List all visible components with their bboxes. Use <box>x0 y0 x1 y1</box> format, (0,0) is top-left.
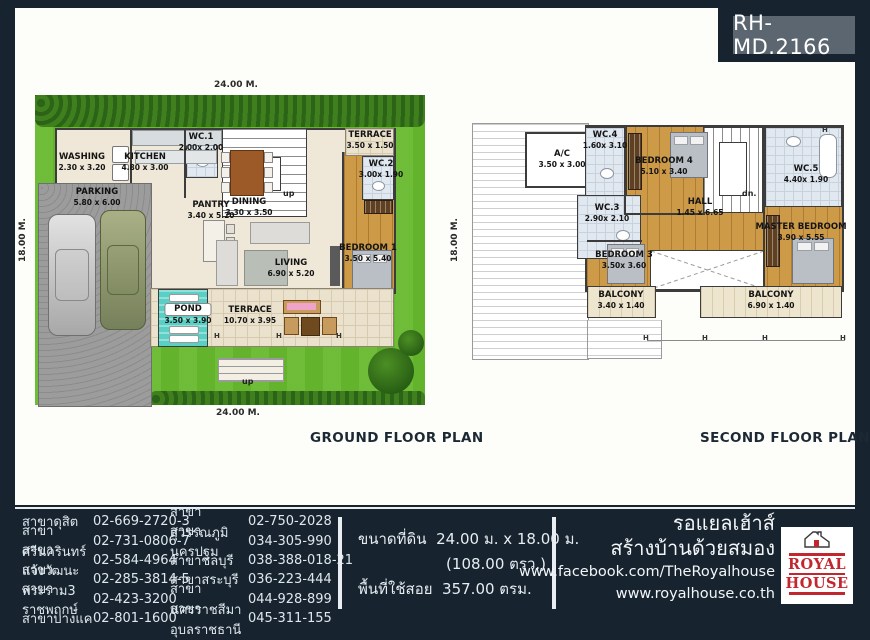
dimension-line <box>647 340 845 341</box>
branch-row: สาขาชลบุรี038-388-018-21 <box>170 551 353 570</box>
car-olive <box>100 210 146 330</box>
logo-word-house: HOUSE <box>781 576 853 591</box>
room-label-bedroom4: BEDROOM 45.10 x 3.40 <box>635 156 693 176</box>
outdoor-chair <box>284 317 299 335</box>
chair-icon <box>226 224 235 234</box>
room-label-terrace-bottom: TERRACE10.70 x 3.95 <box>224 305 276 325</box>
outdoor-table <box>301 317 320 336</box>
branch-row: สาขาบางแค02-801-1600 <box>22 609 190 628</box>
room-label-bedroom3: BEDROOM 33.50x 3.60 <box>595 250 653 270</box>
toilet-icon <box>372 181 385 191</box>
chair-icon <box>264 167 273 178</box>
h-marker: H <box>822 126 828 134</box>
stairs-down-label: dn. <box>742 189 756 198</box>
room-label-dining: DINING3.30 x 3.50 <box>225 197 272 217</box>
room-label-bedroom1: BEDROOM 13.50 x 5.40 <box>339 243 397 263</box>
room-label-wc5: WC.54.40x 1.90 <box>784 164 828 184</box>
stairs-up-label: up <box>242 377 253 386</box>
open-void <box>650 250 765 290</box>
toilet-icon <box>600 168 614 179</box>
room-label-hall: HALL1.45 x 6.65 <box>676 197 723 217</box>
chair-icon <box>221 167 230 178</box>
wall <box>587 240 642 242</box>
room-label-living: LIVING6.90 x 5.20 <box>267 258 314 278</box>
outdoor-chair <box>322 317 337 335</box>
h-marker: H <box>214 332 220 340</box>
usable-area-line: พื้นที่ใช้สอย 357.00 ตรม. <box>358 577 532 601</box>
bush <box>398 330 424 356</box>
floor-plan-poster: { "badge": "RH-MD.2166", "marker": "H", … <box>0 0 870 630</box>
brand-slogan-thai: สร้างบ้านด้วยสมอง <box>519 536 775 561</box>
dim-right: 18.00 M. <box>450 218 460 262</box>
chair-icon <box>264 152 273 163</box>
logo-word-royal: ROYAL <box>781 557 853 572</box>
car-silver <box>48 214 96 336</box>
website-url: www.royalhouse.co.th <box>519 583 775 605</box>
brand-block: รอแยลเฮ้าส์ สร้างบ้านด้วยสมอง www.facebo… <box>519 511 775 605</box>
room-label-wc2: WC.23.00x 1.90 <box>359 159 403 179</box>
stairs-up-label: up <box>283 189 294 198</box>
room-label-terrace-top: TERRACE3.50 x 1.50 <box>346 130 393 150</box>
h-marker: H <box>702 334 708 342</box>
chair-icon <box>221 152 230 163</box>
wall <box>763 127 765 287</box>
logo-bar <box>789 592 845 595</box>
branch-row: สาขาราชพฤกษ์02-423-3200 <box>22 590 190 609</box>
footer-vbar <box>338 517 342 609</box>
royal-house-logo: ROYAL HOUSE <box>781 527 853 604</box>
footer-divider <box>15 507 855 509</box>
room-label-kitchen: KITCHEN4.80 x 3.00 <box>121 152 168 172</box>
model-code-badge: RH-MD.2166 <box>733 16 855 54</box>
room-label-wc3: WC.32.90x 2.10 <box>585 203 629 223</box>
branch-list-col2: สาขาสุวรรณภูมิ02-750-2028 สาขานครปฐม034-… <box>170 512 353 628</box>
house-icon <box>800 530 834 548</box>
dim-top: 24.00 M. <box>214 80 258 90</box>
bed-icon <box>792 238 834 284</box>
room-label-pond: POND3.50 x 3.90 <box>164 303 211 325</box>
room-label-wc4: WC.41.60x 3.10 <box>583 130 627 150</box>
branch-list-col1: สาขาดุสิต02-669-2720-3 สาขาศรีนครินทร์02… <box>22 512 190 628</box>
hedge-top <box>35 95 425 127</box>
chair-icon <box>264 182 273 193</box>
room-label-washing: WASHING2.30 x 3.20 <box>58 152 105 172</box>
sofa-icon <box>216 240 238 286</box>
branch-row: สาขาอุบลราชธานี045-311-155 <box>170 609 353 628</box>
land-size-label: ขนาดที่ดิน <box>358 530 427 548</box>
h-marker: H <box>643 334 649 342</box>
second-floor-title: SECOND FLOOR PLAN <box>700 430 870 446</box>
room-label-balcony-left: BALCONY3.40 x 1.40 <box>597 290 644 310</box>
room-label-wc1: WC.12.00x 2.00 <box>179 132 223 152</box>
wardrobe-icon <box>364 200 393 214</box>
h-marker: H <box>336 332 342 340</box>
outdoor-bench <box>283 300 321 314</box>
sink-icon <box>786 136 801 147</box>
facebook-url: www.facebook.com/TheRoyalhouse <box>519 561 775 583</box>
dim-bottom: 24.00 M. <box>216 408 260 418</box>
ground-floor-title: GROUND FLOOR PLAN <box>310 430 484 446</box>
land-size-sub: (108.00 ตรว.) <box>358 552 546 576</box>
room-label-balcony-right: BALCONY6.90 x 1.40 <box>747 290 794 310</box>
dining-table <box>230 150 264 196</box>
h-marker: H <box>840 334 846 342</box>
room-label-master-bedroom: MASTER BEDROOM3.90 x 5.55 <box>755 222 846 242</box>
room-label-ac: A/C3.50 x 3.00 <box>538 149 585 169</box>
h-marker: H <box>762 334 768 342</box>
sofa-icon <box>250 222 310 244</box>
brand-name-thai: รอแยลเฮ้าส์ <box>519 511 775 536</box>
room-label-parking: PARKING5.80 x 6.00 <box>73 187 120 207</box>
branch-row: สาขานครปฐม034-305-990 <box>170 531 353 550</box>
chair-icon <box>221 182 230 193</box>
dim-left: 18.00 M. <box>18 218 28 262</box>
usable-area-label: พื้นที่ใช้สอย <box>358 580 433 598</box>
h-marker: H <box>276 332 282 340</box>
stair-well <box>719 142 747 196</box>
